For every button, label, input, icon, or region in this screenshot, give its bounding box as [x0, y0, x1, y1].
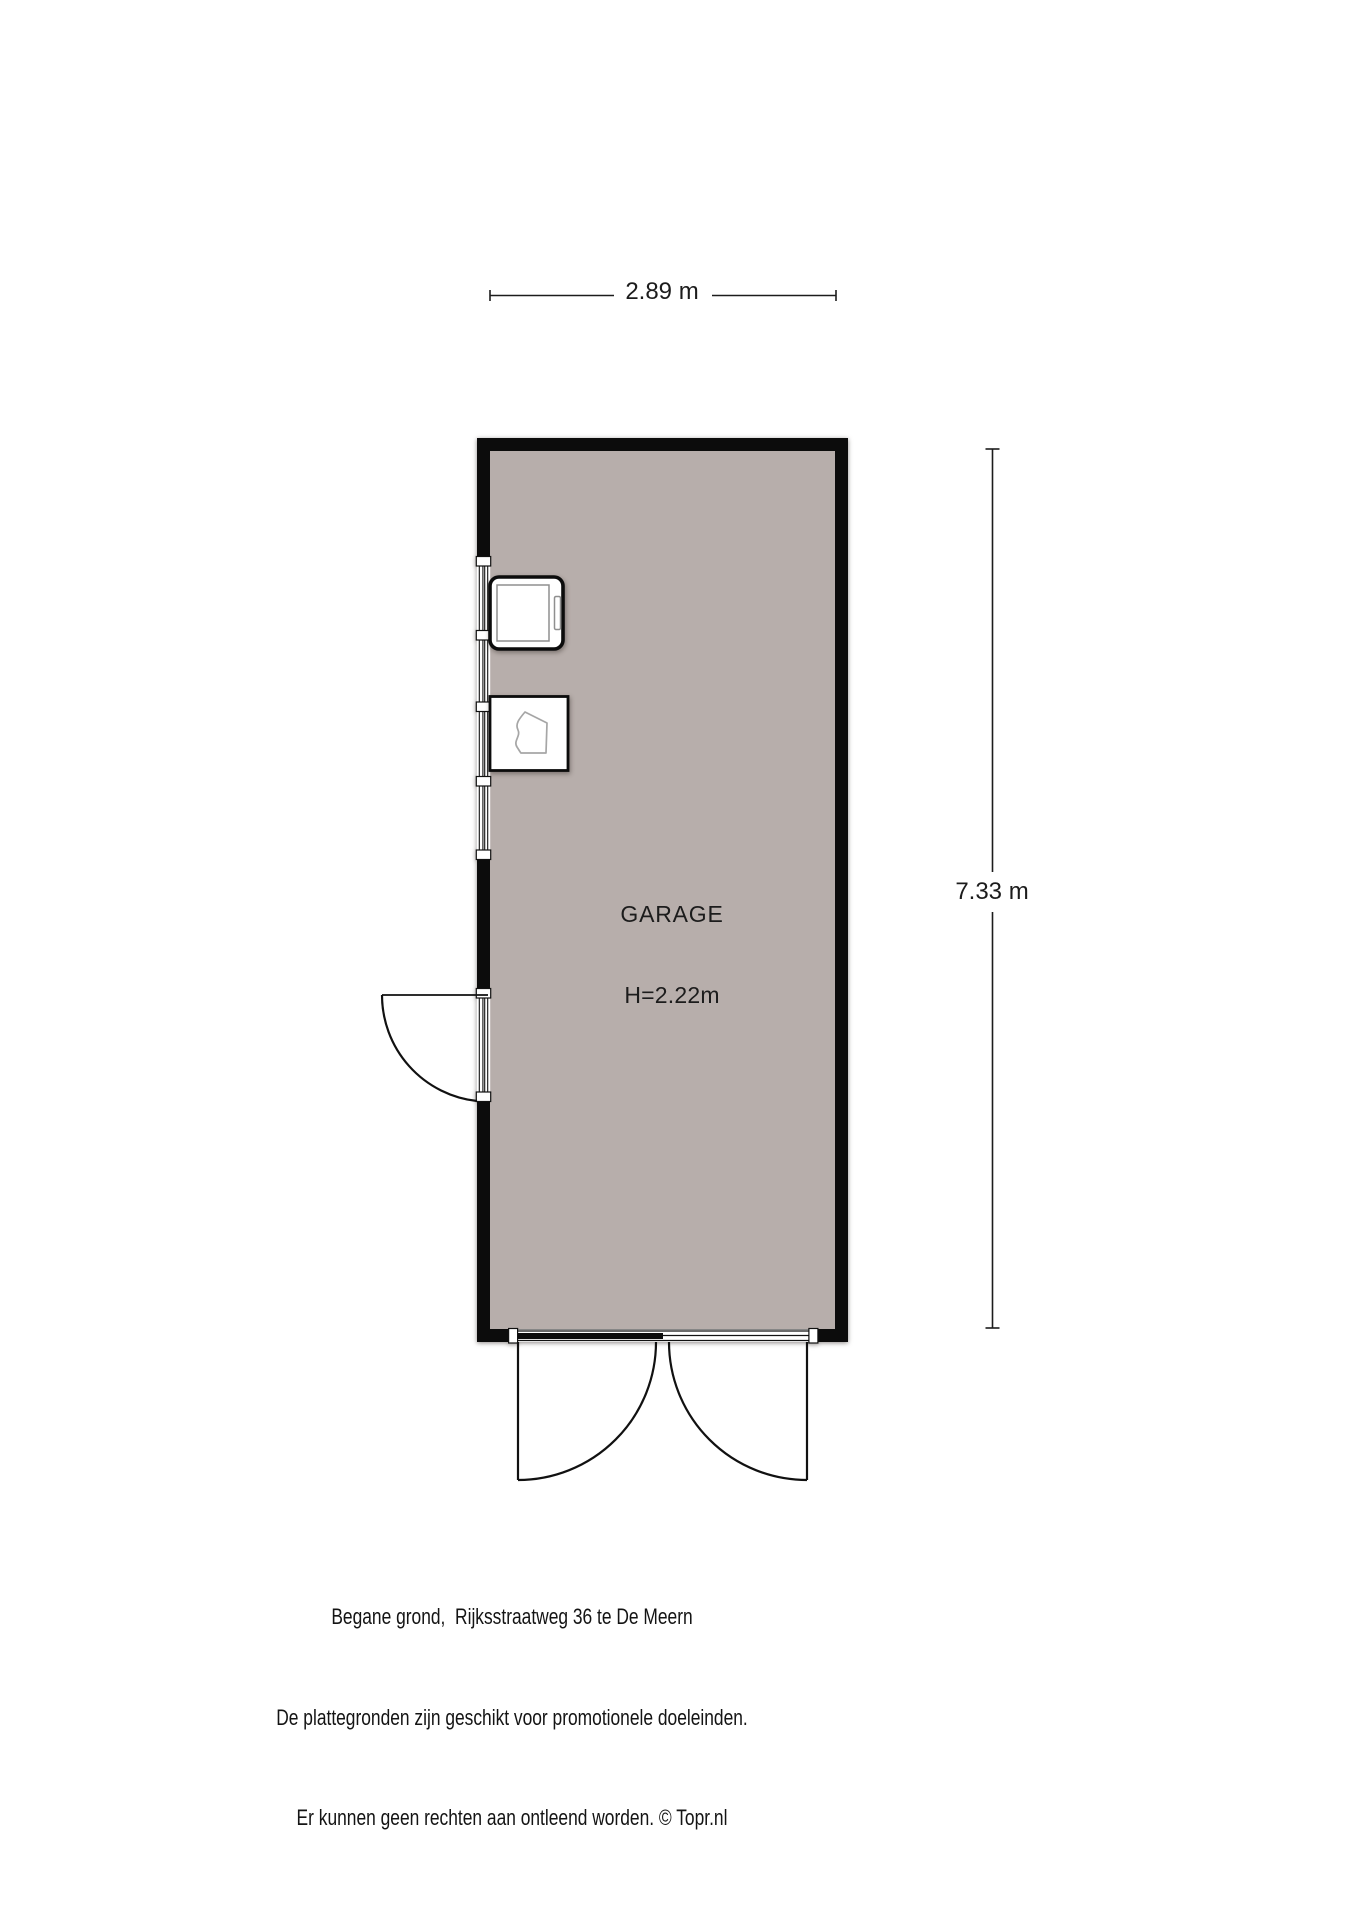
caption-line-1: Begane grond, Rijksstraatweg 36 te De Me…: [108, 1600, 917, 1634]
width-dimension-label: 2.89 m: [625, 280, 698, 304]
storage-unit: [490, 697, 568, 771]
side-door-opening: [476, 989, 490, 1102]
washer-handle: [555, 597, 561, 630]
washer-door: [497, 585, 549, 641]
caption-line-2: De plattegronden zijn geschikt voor prom…: [108, 1701, 917, 1735]
garage-door-left-arc: [518, 1342, 656, 1480]
room-label: GARAGE H=2.22m: [620, 847, 723, 1063]
floorplan-page: 2.89 m 7.33 m GARAGE H=2.22m Begane gron…: [0, 0, 1358, 1920]
caption: Begane grond, Rijksstraatweg 36 te De Me…: [108, 1533, 917, 1902]
washing-machine: [490, 577, 563, 649]
height-dimension-label: 7.33 m: [955, 880, 1028, 904]
garage-door-opening: [509, 1329, 818, 1344]
garage-door-leaf-closed: [517, 1333, 663, 1339]
room-ceiling-height: H=2.22m: [620, 982, 723, 1009]
garage-door-right-arc: [669, 1342, 807, 1480]
room-name: GARAGE: [620, 901, 723, 928]
caption-line-3: Er kunnen geen rechten aan ontleend word…: [108, 1801, 917, 1835]
side-door-arc: [382, 995, 477, 1101]
garage-double-door-swing: [518, 1342, 807, 1480]
side-door-swing: [382, 995, 488, 1101]
